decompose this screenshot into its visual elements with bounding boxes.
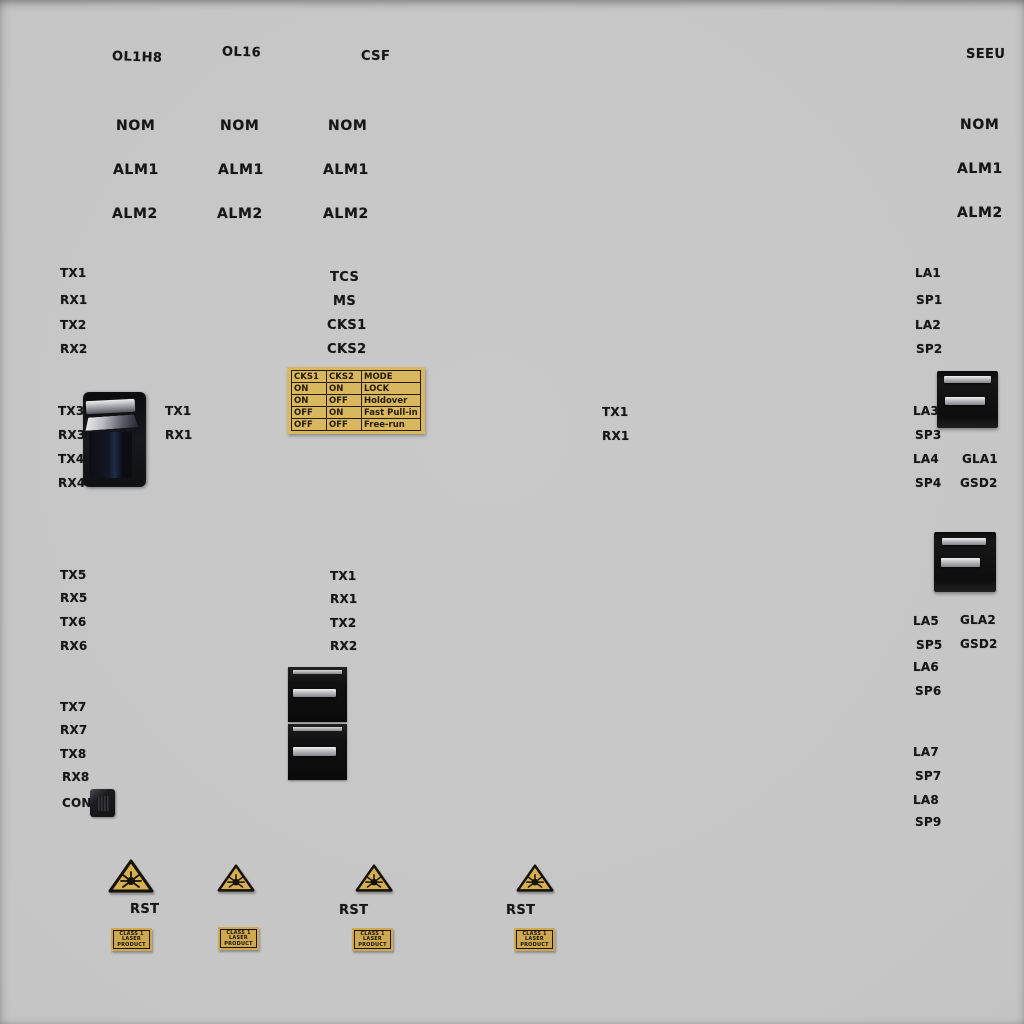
port-label-sp6: SP6 bbox=[915, 684, 941, 698]
led-label-alm2-3: ALM2 bbox=[323, 206, 369, 222]
port-label-tx5: TX5 bbox=[60, 568, 86, 582]
port-label-rx1: RX1 bbox=[60, 293, 87, 307]
laser-warning-icon bbox=[516, 864, 554, 892]
mode-table-cell: OFF bbox=[292, 419, 327, 431]
laser-warning-icon bbox=[108, 859, 154, 893]
mode-table-cell: LOCK bbox=[362, 383, 421, 395]
port-label-tx2-b: TX2 bbox=[330, 616, 356, 630]
fiber-adapter-la3 bbox=[937, 371, 998, 428]
connector-face bbox=[85, 414, 139, 431]
mode-table-cell: OFF bbox=[327, 395, 362, 407]
card-title-ol16: OL16 bbox=[222, 44, 261, 60]
port-label-rx2-b: RX2 bbox=[330, 639, 357, 653]
port-label-rx5: RX5 bbox=[60, 591, 87, 605]
led-label-alm2-1: ALM2 bbox=[112, 206, 158, 222]
mode-table-cell: ON bbox=[327, 383, 362, 395]
port-label-la2: LA2 bbox=[915, 318, 941, 332]
port-label-sp2: SP2 bbox=[916, 342, 942, 356]
adapter-slot bbox=[945, 397, 985, 405]
class1-laser-label: CLASS 1 LASER PRODUCT bbox=[514, 928, 555, 951]
reset-label-3: RST bbox=[506, 903, 535, 918]
led-label-nom-4: NOM bbox=[960, 117, 999, 133]
mode-table-cell: ON bbox=[327, 407, 362, 419]
port-label-sp5: SP5 bbox=[916, 638, 942, 652]
class1-laser-label: CLASS 1 LASER PRODUCT bbox=[352, 928, 393, 951]
connector-latch bbox=[86, 399, 136, 415]
fiber-adapter-mid-top bbox=[288, 667, 347, 722]
port-label-tx3: TX3 bbox=[58, 404, 84, 418]
mode-table-cell: Free-run bbox=[362, 419, 421, 431]
class1-laser-label: CLASS 1 LASER PRODUCT bbox=[111, 928, 152, 951]
led-label-nom-3: NOM bbox=[328, 118, 367, 134]
class1-laser-label-line: PRODUCT bbox=[517, 943, 552, 948]
adapter-edge bbox=[293, 670, 342, 674]
reset-label-2: RST bbox=[339, 903, 368, 918]
mode-table-cell: Holdover bbox=[362, 395, 421, 407]
port-label-rx3: RX3 bbox=[58, 428, 85, 442]
card-title-csf: CSF bbox=[361, 49, 390, 64]
port-label-la6: LA6 bbox=[913, 660, 939, 674]
port-label-tx7: TX7 bbox=[60, 700, 86, 714]
led-label-alm1-1: ALM1 bbox=[113, 162, 159, 178]
class1-laser-label: CLASS 1 LASER PRODUCT bbox=[218, 927, 259, 950]
card-title-ol1h8: OL1H8 bbox=[112, 49, 163, 66]
port-label-rx6: RX6 bbox=[60, 639, 87, 653]
clock-mode-table: CKS1 CKS2 MODE ON ON LOCK ON OFF Holdove… bbox=[287, 367, 425, 434]
connector-pins bbox=[98, 796, 109, 811]
port-label-con: CON bbox=[62, 796, 92, 810]
port-label-rx4: RX4 bbox=[58, 476, 85, 490]
port-label-tx2: TX2 bbox=[60, 318, 86, 332]
port-label-tx1-b: TX1 bbox=[165, 404, 191, 418]
class1-laser-label-line: PRODUCT bbox=[114, 943, 149, 948]
port-label-rx8: RX8 bbox=[62, 770, 89, 784]
port-label-tx1-d: TX1 bbox=[330, 569, 356, 583]
class1-laser-label-line: PRODUCT bbox=[221, 942, 256, 947]
fiber-adapter-la5 bbox=[934, 532, 996, 592]
port-label-gla2: GLA2 bbox=[960, 613, 996, 627]
port-label-rx1-c: RX1 bbox=[602, 429, 629, 443]
connector-body bbox=[89, 432, 132, 478]
port-label-la7: LA7 bbox=[913, 745, 939, 759]
port-label-sp1: SP1 bbox=[916, 293, 942, 307]
optical-connector-tx3 bbox=[83, 392, 146, 487]
sync-label-cks1: CKS1 bbox=[327, 318, 367, 333]
port-label-tx4: TX4 bbox=[58, 452, 84, 466]
port-label-rx1-d: RX1 bbox=[330, 592, 357, 606]
mode-table-header: CKS2 bbox=[327, 371, 362, 383]
port-label-rx2: RX2 bbox=[60, 342, 87, 356]
led-label-nom-2: NOM bbox=[220, 118, 259, 134]
port-label-tx8: TX8 bbox=[60, 747, 86, 761]
port-label-la1: LA1 bbox=[915, 266, 941, 280]
port-label-la4: LA4 bbox=[913, 452, 939, 466]
led-label-nom-1: NOM bbox=[116, 118, 155, 134]
equipment-faceplate-panel: OL1H8 OL16 CSF SEEU NOM NOM NOM NOM ALM1… bbox=[0, 0, 1024, 1024]
adapter-edge bbox=[293, 727, 342, 731]
port-label-sp4: SP4 bbox=[915, 476, 941, 490]
port-label-tx6: TX6 bbox=[60, 615, 86, 629]
port-label-tx1-c: TX1 bbox=[602, 405, 628, 419]
port-label-la5: LA5 bbox=[913, 614, 939, 628]
port-label-gsd2-a: GSD2 bbox=[960, 476, 998, 490]
adapter-slot bbox=[941, 558, 980, 567]
adapter-slot bbox=[942, 538, 986, 545]
adapter-slot bbox=[293, 747, 336, 756]
adapter-slot bbox=[944, 376, 991, 383]
led-label-alm2-2: ALM2 bbox=[217, 206, 263, 222]
mode-table-cell: ON bbox=[292, 383, 327, 395]
mode-table-header: CKS1 bbox=[292, 371, 327, 383]
sync-label-tcs: TCS bbox=[330, 270, 359, 285]
card-title-seeu: SEEU bbox=[966, 47, 1005, 62]
led-label-alm1-2: ALM1 bbox=[218, 162, 264, 178]
laser-warning-icon bbox=[355, 864, 393, 892]
adapter-slot bbox=[293, 689, 336, 697]
reset-label-1: RST bbox=[130, 902, 159, 917]
port-label-gsd2-b: GSD2 bbox=[960, 637, 998, 651]
mode-table-cell: OFF bbox=[292, 407, 327, 419]
led-label-alm2-4: ALM2 bbox=[957, 205, 1003, 221]
laser-warning-icon bbox=[217, 864, 255, 892]
mode-table-cell: OFF bbox=[327, 419, 362, 431]
led-label-alm1-4: ALM1 bbox=[957, 161, 1003, 177]
sync-label-cks2: CKS2 bbox=[327, 342, 367, 357]
mode-table-cell: ON bbox=[292, 395, 327, 407]
class1-laser-label-line: PRODUCT bbox=[355, 943, 390, 948]
port-label-sp9: SP9 bbox=[915, 815, 941, 829]
port-label-tx1: TX1 bbox=[60, 266, 86, 280]
mode-table-cell: Fast Pull-in bbox=[362, 407, 421, 419]
port-label-rx7: RX7 bbox=[60, 723, 87, 737]
con-connector bbox=[90, 789, 115, 817]
led-label-alm1-3: ALM1 bbox=[323, 162, 369, 178]
mode-table-header: MODE bbox=[362, 371, 421, 383]
port-label-sp3: SP3 bbox=[915, 428, 941, 442]
sync-label-ms: MS bbox=[333, 294, 356, 309]
port-label-sp7: SP7 bbox=[915, 769, 941, 783]
port-label-gla1: GLA1 bbox=[962, 452, 998, 466]
fiber-adapter-mid-bottom bbox=[288, 724, 347, 780]
port-label-la8: LA8 bbox=[913, 793, 939, 807]
port-label-rx1-b: RX1 bbox=[165, 428, 192, 442]
port-label-la3: LA3 bbox=[913, 404, 939, 418]
